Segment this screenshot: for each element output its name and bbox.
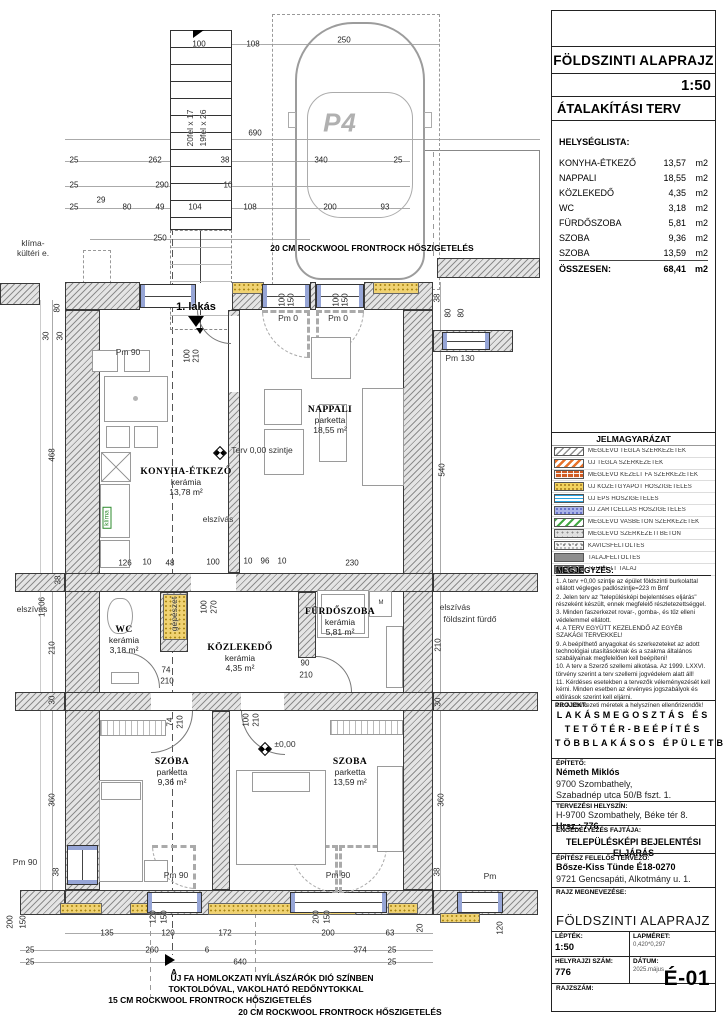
annotation-label: 19fel x 26 [198, 110, 208, 147]
dimension-label: 25 [388, 958, 397, 967]
bed-pillow [101, 782, 141, 800]
annotation-label: 1. lakás [176, 301, 216, 313]
annotation-label: 20 CM ROCKWOOL FRONTROCK HŐSZIGETELÉS [270, 243, 473, 253]
legend-row: ÚJ EPS HŐSZIGETELÉS [552, 493, 715, 505]
note-line: 11. Kérdéses esetekben a tervezők vélemé… [556, 679, 711, 701]
annotation-label: ±0,00 [274, 739, 295, 749]
note-line: 1. A terv +0,00 szintje az épület földsz… [556, 578, 711, 593]
legend-label: ÚJ ZÁRTCELLÁS HŐSZIGETELÉS [588, 507, 686, 513]
party-wall [433, 573, 538, 592]
insulation-strip [388, 903, 418, 914]
room-row-name: SZOBA [559, 248, 652, 258]
dimension-label: 640 [233, 958, 246, 967]
dimension-label: 20 [416, 924, 425, 933]
room-finish: kerámia [325, 617, 355, 627]
room-list-row: KÖZLEKEDŐ 4,35 m2 [559, 185, 708, 200]
dimension-label: 90 [301, 659, 310, 668]
party-wall [0, 283, 40, 305]
legend-row: MEGLÉVŐ KEZELT FA SZERKEZETEK [552, 470, 715, 482]
legend-row: KAVICSFELTÖLTÉS [552, 540, 715, 552]
bathroom-door-swing [316, 656, 352, 692]
wc-sink [111, 672, 139, 684]
dimension-label: 100 [278, 293, 287, 306]
room-finish: kerámia [225, 653, 255, 663]
dimension-label: 74 [162, 666, 171, 675]
dimension-label: 38 [221, 156, 230, 165]
dimension-label: 150 [341, 293, 350, 306]
dimension-label: 38 [433, 294, 442, 303]
floor-plan: 1001082506902526238340252529010252980491… [0, 0, 551, 1024]
entrance-arrow [188, 316, 204, 327]
dimension-label: 10 [278, 557, 287, 566]
room-label: NAPPALI parketta 18,55 m² [308, 405, 352, 435]
dimension-label: 210 [192, 349, 201, 362]
room-row-name: WC [559, 203, 652, 213]
total-unit: m2 [686, 264, 708, 274]
site-addr: H-9700 Szombathely, Béke tér 8. [556, 810, 711, 821]
room-row-area: 4,35 [652, 188, 686, 198]
legend-swatch [554, 482, 584, 491]
note-line: 4. A TERV EGYÜTT KEZELENDŐ AZ EGYÉB SZAK… [556, 625, 711, 640]
dimension-label: 100 [200, 600, 209, 613]
legend-swatch [554, 541, 584, 550]
project-name-line: TÖBBLAKÁSOS ÉPÜLETBEN [555, 737, 712, 751]
legend-swatch [554, 447, 584, 456]
room-row-unit: m2 [686, 188, 708, 198]
dimension-label: 100 [332, 293, 341, 306]
dimension-label: 29 [97, 196, 106, 205]
client-addr1: 9700 Szombathely, [556, 779, 711, 790]
room-row-unit: m2 [686, 203, 708, 213]
room-area: 18,55 m² [313, 425, 347, 435]
dimension-label: 126 [118, 559, 131, 568]
passage-opening [191, 574, 236, 591]
annotation-label: Pm 90 [164, 870, 189, 880]
room-list: HELYSÉGLISTA: KONYHA-ÉTKEZŐ 13,57 m2 NAP… [552, 121, 715, 291]
dimension-label: 38 [433, 868, 442, 877]
room-name: KONYHA-ÉTKEZŐ [140, 467, 231, 477]
legend-heading: JELMAGYARÁZAT [552, 433, 715, 446]
room-area: 9,36 m² [158, 777, 187, 787]
notes-list: 1. A terv +0,00 szintje az épület földsz… [556, 578, 711, 709]
room-row-area: 5,81 [652, 218, 686, 228]
car-mirror [424, 112, 432, 128]
annotation-label: 20 CM ROCKWOOL FRONTROCK HŐSZIGETELÉS [238, 1007, 441, 1017]
annotation-label: kültéri e. [17, 248, 49, 258]
dimension-label: 100 [192, 40, 205, 49]
dimension-label: 108 [246, 40, 259, 49]
dimension-label: 74 [166, 718, 175, 727]
dimension-label: 25 [26, 958, 35, 967]
room-row-area: 13,57 [652, 158, 686, 168]
project-heading: PROJEKT: [555, 702, 712, 709]
dimension-label: 200 [312, 910, 321, 923]
room-label: SZOBA parketta 9,36 m² [155, 757, 189, 787]
drawing-number: É-01 [664, 967, 710, 991]
room-name: SZOBA [155, 757, 189, 767]
legend-row: ÚJ KŐZETGYAPOT HŐSZIGETELÉS [552, 481, 715, 493]
client-name: Németh Miklós [556, 767, 711, 779]
legend-row: MEGLÉVŐ VASBETON SZERKEZETEK [552, 517, 715, 529]
dimension-label: 80 [123, 203, 132, 212]
site-section: TERVEZÉSI HELYSZÍN: H-9700 Szombathely, … [552, 801, 715, 825]
dimension-label: 120 [161, 929, 174, 938]
dimension-label: 104 [188, 203, 201, 212]
wall [65, 282, 140, 310]
room-name: SZOBA [333, 757, 367, 767]
furniture-sofa [362, 388, 404, 486]
room-list-row: SZOBA 9,36 m2 [559, 230, 708, 245]
dimension-label: 80 [444, 309, 453, 318]
sheet-size-value: 0,420*0,297 [633, 942, 712, 948]
drawing-sheet: 1001082506902526238340252529010252980491… [0, 0, 723, 1024]
room-label: SZOBA parketta 13,59 m² [333, 757, 367, 787]
architect-section: ÉPÍTÉSZ FELELŐS TERVEZŐ: Bősze-Kiss Tünd… [552, 853, 715, 887]
scale-value: 1:50 [555, 942, 626, 953]
party-wall [20, 890, 65, 915]
dimension-label: 290 [155, 181, 168, 190]
scale-cell: LÉPTÉK: 1:50 [552, 932, 630, 956]
dim-line [440, 282, 441, 915]
dimension-label: 150 [19, 915, 28, 928]
dimension-label: 25 [70, 181, 79, 190]
furniture-chair [134, 426, 158, 448]
dimension-label: 210 [176, 715, 185, 728]
furniture-armchair [311, 337, 351, 379]
dimension-label: 38 [52, 868, 61, 877]
dimension-label: 200 [323, 203, 336, 212]
insulation-leader [150, 913, 151, 997]
dimension-label: 150 [323, 910, 332, 923]
legend-swatch [554, 459, 584, 468]
annotation-label: Pm 90 [326, 870, 351, 880]
client-label: ÉPÍTETŐ: [556, 760, 711, 767]
section-arrow [165, 954, 175, 966]
dimension-label: 120 [149, 910, 158, 923]
wardrobe [100, 720, 166, 736]
site-label: TERVEZÉSI HELYSZÍN: [556, 803, 711, 810]
left-wall-window [67, 845, 98, 885]
client-addr2: Szabadnép utca 50/B fszt. 1. [556, 790, 711, 801]
room-name: KÖZLEKEDŐ [207, 643, 272, 653]
wall [65, 573, 433, 592]
annotation-label: P4 [323, 108, 357, 139]
sheet-size-cell: LAPMÉRET: 0,420*0,297 [630, 932, 715, 956]
dimension-label: 250 [337, 36, 350, 45]
dimension-label: 135 [100, 929, 113, 938]
permit-section: ENGEDÉLYEZÉS FAJTÁJA: TELEPÜLÉSKÉPI BEJE… [552, 825, 715, 853]
legend-label: TALAJFELTÖLTÉS [588, 555, 640, 561]
room-row-name: FÜRDŐSZOBA [559, 218, 652, 228]
bed-pillow [252, 772, 310, 792]
room-row-unit: m2 [686, 158, 708, 168]
parcel-label: HELYRAJZI SZÁM: [555, 958, 626, 965]
room-name: NAPPALI [308, 405, 352, 415]
room-finish: parketta [315, 415, 346, 425]
project-name-line: LAKÁSMEGOSZTÁS ÉS [555, 709, 712, 723]
legend-row: MEGLÉVŐ SZERKEZETI BETON [552, 529, 715, 541]
legend-swatch [554, 470, 584, 479]
notes-section: MEGJEGYZÉS: 1. A terv +0,00 szintje az é… [552, 564, 715, 700]
legend-label: ÚJ KŐZETGYAPOT HŐSZIGETELÉS [588, 484, 692, 490]
room-list-row: NAPPALI 18,55 m2 [559, 170, 708, 185]
annotation-label: 20fel x 17 [185, 110, 195, 147]
dimension-label: 540 [438, 463, 447, 476]
dimension-label: 25 [26, 946, 35, 955]
legend-swatch [554, 494, 584, 503]
total-label: ÖSSZESEN: [559, 264, 652, 274]
drawing-name: FÖLDSZINTI ALAPRAJZ [556, 913, 711, 928]
annotation-label: földszint fürdő [444, 614, 497, 624]
room-finish: parketta [335, 767, 366, 777]
legend-label: ÚJ TÉGLA SZERKEZETEK [588, 460, 663, 466]
insulation-strip [232, 282, 264, 294]
room-label: FÜRDŐSZOBA kerámia 5,81 m² [305, 607, 375, 637]
room-row-unit: m2 [686, 248, 708, 258]
legend-label: MEGLÉVŐ SZERKEZETI BETON [588, 531, 681, 537]
stair-start-flag [193, 30, 204, 38]
note-line: 10. A terv a Szerző szellemi alkotása. A… [556, 663, 711, 678]
wall [212, 711, 230, 890]
parcel-value: 776 [555, 967, 626, 978]
dimension-label: 150 [287, 293, 296, 306]
neighbor-window [457, 892, 503, 913]
room-row-area: 13,59 [652, 248, 686, 258]
scale-size-table: LÉPTÉK: 1:50 LAPMÉRET: 0,420*0,297 [552, 931, 715, 956]
furniture-armchair [264, 389, 302, 425]
door-opening [151, 693, 192, 710]
door-opening [241, 693, 284, 710]
room-list-row: SZOBA 13,59 m2 [559, 245, 708, 260]
dimension-label: 10 [244, 557, 253, 566]
room-name: WC [115, 625, 132, 635]
annotation-label: Pm 130 [445, 353, 474, 363]
architect-name: Bősze-Kiss Tünde É18-0270 [556, 862, 711, 874]
dimension-label: 80 [53, 304, 62, 313]
room-row-unit: m2 [686, 233, 708, 243]
total-area: 68,41 [652, 264, 686, 274]
room-list-heading: HELYSÉGLISTA: [559, 137, 708, 147]
dimension-label: 250 [153, 234, 166, 243]
legend-row: ÚJ ZÁRTCELLÁS HŐSZIGETELÉS [552, 505, 715, 517]
dimension-label: 63 [386, 929, 395, 938]
note-line: 3. Minden faszerkezet rovar-, gomba-, és… [556, 609, 711, 624]
dimension-label: 100 [183, 349, 192, 362]
dimension-label: 25 [70, 203, 79, 212]
legend-label: ÚJ EPS HŐSZIGETELÉS [588, 496, 659, 502]
annotation-label: Pm 90 [13, 857, 38, 867]
dimension-label: 25 [70, 156, 79, 165]
dimension-label: 25 [388, 946, 397, 955]
sheet-subtitle: ÁTALAKÍTÁSI TERV [552, 96, 715, 121]
annotation-label: Pm 0 [328, 313, 348, 323]
room-area: 4,35 m² [226, 663, 255, 673]
room-list-row: WC 3,18 m2 [559, 200, 708, 215]
insulation-strip [373, 282, 419, 294]
dimension-label: 200 [321, 929, 334, 938]
annotation-label: elszívás [17, 604, 48, 614]
dimension-label: 172 [218, 929, 231, 938]
client-section: ÉPÍTETŐ: Németh Miklós 9700 Szombathely,… [552, 758, 715, 801]
room-area: 3,18 m² [110, 645, 139, 655]
architect-label: ÉPÍTÉSZ FELELŐS TERVEZŐ: [556, 855, 711, 862]
dimension-label: 25 [394, 156, 403, 165]
dimension-label: 100 [242, 713, 251, 726]
room-label: KONYHA-ÉTKEZŐ kerámia 13,78 m² [140, 467, 231, 497]
legend-swatch [554, 529, 584, 538]
dimension-label: 30 [434, 698, 443, 707]
furniture-chair [92, 350, 118, 372]
dim-line [52, 300, 53, 915]
wardrobe [330, 720, 403, 735]
furniture-chair [106, 426, 130, 448]
room-label: WC kerámia 3,18 m² [109, 625, 139, 655]
room-list-row: FÜRDŐSZOBA 5,81 m2 [559, 215, 708, 230]
dimension-label: 150 [160, 910, 169, 923]
window-swing [339, 845, 387, 893]
dimension-label: 100 [206, 558, 219, 567]
drawing-name-label: RAJZ MEGNEVEZÉSE: [556, 889, 711, 896]
dimension-label: 10 [224, 181, 233, 190]
annotation-label: klíma [103, 507, 112, 529]
dimension-label: 262 [148, 156, 161, 165]
bathroom-cabinet [386, 626, 403, 688]
kitchen-hob [101, 452, 131, 482]
room-row-name: KONYHA-ÉTKEZŐ [559, 158, 652, 168]
level-marker [213, 446, 227, 460]
room-row-area: 18,55 [652, 173, 686, 183]
party-wall [15, 692, 65, 711]
room-area: 13,59 m² [333, 777, 367, 787]
dimension-label: 260 [145, 946, 158, 955]
architect-addr: 9721 Gencsapáti, Alkotmány u. 1. [556, 874, 711, 885]
bedroom-window [290, 892, 387, 913]
room-row-area: 9,36 [652, 233, 686, 243]
legend-swatch [554, 506, 584, 515]
annotation-label: Terv 0,00 szintje [231, 445, 292, 455]
dim-line [20, 962, 433, 963]
dimension-label: 200 [6, 915, 15, 928]
room-row-area: 3,18 [652, 203, 686, 213]
title-block-spacer [552, 11, 715, 46]
notes-heading: MEGJEGYZÉS: [556, 566, 711, 576]
annotation-label: Pm [484, 871, 497, 881]
room-row-name: SZOBA [559, 233, 652, 243]
dim-line [40, 300, 41, 890]
room-name: FÜRDŐSZOBA [305, 607, 375, 617]
annotation-label: elszívás [203, 514, 234, 524]
drawing-number-section: RAJZSZÁM: É-01 [552, 983, 715, 992]
note-line: 2. Jelen terv az "településképi bejelent… [556, 594, 711, 609]
dimension-label: 210 [160, 677, 173, 686]
dimension-label: 374 [353, 946, 366, 955]
legend-items: MEGLÉVŐ TÉGLA SZERKEZETEK ÚJ TÉGLA SZERK… [552, 446, 715, 576]
dimension-label: 230 [345, 559, 358, 568]
wall [65, 310, 100, 890]
wall [403, 310, 433, 890]
annotation-label: gépészet [169, 597, 179, 632]
room-list-row: KONYHA-ÉTKEZŐ 13,57 m2 [559, 155, 708, 170]
project-section: PROJEKT: LAKÁSMEGOSZTÁS ÉSTETŐTÉR-BEÉPÍT… [552, 700, 715, 758]
annotation-label: Pm 90 [116, 347, 141, 357]
annotation-label: elszívás [440, 602, 471, 612]
permit-label: ENGEDÉLYEZÉS FAJTÁJA: [556, 827, 711, 834]
party-wall [433, 692, 538, 711]
dimension-label: 10 [143, 558, 152, 567]
dim-line [65, 933, 433, 934]
dimension-label: 340 [314, 156, 327, 165]
legend: JELMAGYARÁZAT MEGLÉVŐ TÉGLA SZERKEZETEK … [552, 432, 715, 564]
dimension-label: 360 [437, 793, 446, 806]
room-area: 5,81 m² [326, 627, 355, 637]
project-name-line: TETŐTÉR-BEÉPÍTÉS [555, 723, 712, 737]
legend-row: TALAJFELTÖLTÉS [552, 552, 715, 564]
dimension-label: 38 [54, 576, 63, 585]
dimension-label: 96 [261, 557, 270, 566]
room-row-name: NAPPALI [559, 173, 652, 183]
room-row-unit: m2 [686, 173, 708, 183]
legend-label: MEGLÉVŐ TÉGLA SZERKEZETEK [588, 448, 686, 454]
room-finish: kerámia [109, 635, 139, 645]
dimension-label: 108 [243, 203, 256, 212]
dimension-label: 93 [381, 203, 390, 212]
insulation-strip [440, 913, 480, 923]
drawing-name-section: RAJZ MEGNEVEZÉSE: FÖLDSZINTI ALAPRAJZ [552, 887, 715, 931]
wall [437, 258, 540, 278]
sheet-scale: 1:50 [552, 73, 715, 96]
insulation-strip [60, 903, 102, 914]
dimension-label: 120 [496, 921, 505, 934]
legend-swatch [554, 518, 584, 527]
parcel-cell: HELYRAJZI SZÁM: 776 [552, 957, 630, 983]
room-finish: parketta [157, 767, 188, 777]
dimension-label: 6 [205, 946, 209, 955]
dimension-label: 48 [166, 559, 175, 568]
annotation-label: Pm 0 [278, 313, 298, 323]
room-finish: kerámia [171, 477, 201, 487]
sheet-title: FÖLDSZINTI ALAPRAJZ [552, 46, 715, 73]
side-window-pm130 [442, 332, 490, 350]
dimension-label: 49 [156, 203, 165, 212]
dimension-label: 30 [42, 332, 51, 341]
annotation-label: M [379, 600, 384, 606]
table-center-dot [133, 396, 138, 401]
dimension-label: 360 [48, 793, 57, 806]
dimension-label: 210 [48, 641, 57, 654]
room-area: 13,78 m² [169, 487, 203, 497]
desk [377, 766, 403, 852]
room-label: KÖZLEKEDŐ kerámia 4,35 m² [207, 643, 272, 673]
project-name: LAKÁSMEGOSZTÁS ÉSTETŐTÉR-BEÉPÍTÉSTÖBBLAK… [555, 709, 712, 751]
dim-line [20, 950, 433, 951]
legend-row: MEGLÉVŐ TÉGLA SZERKEZETEK [552, 446, 715, 458]
dimension-label: 210 [299, 671, 312, 680]
room-row-unit: m2 [686, 218, 708, 228]
legend-label: MEGLÉVŐ VASBETON SZERKEZETEK [588, 519, 699, 525]
title-block-gap [552, 291, 715, 432]
legend-swatch [554, 553, 584, 562]
title-block: FÖLDSZINTI ALAPRAJZ 1:50 ÁTALAKÍTÁSI TER… [551, 10, 716, 1012]
neighbor-outline [425, 150, 540, 151]
legend-label: KAVICSFELTÖLTÉS [588, 543, 645, 549]
dimension-label: 80 [457, 309, 466, 318]
annotation-label: ÚJ FA HOMLOKZATI NYÍLÁSZÁRÓK DIÓ SZÍNBEN [170, 973, 373, 983]
scale-label: LÉPTÉK: [555, 933, 626, 940]
note-line: 9. A beépíthető anyagokat és szerkezetek… [556, 641, 711, 663]
room-list-rows: KONYHA-ÉTKEZŐ 13,57 m2 NAPPALI 18,55 m2 … [559, 155, 708, 260]
annotation-label: 15 CM ROCKWOOL FRONTROCK HŐSZIGETELÉS [108, 995, 311, 1005]
dimension-label: 210 [434, 638, 443, 651]
